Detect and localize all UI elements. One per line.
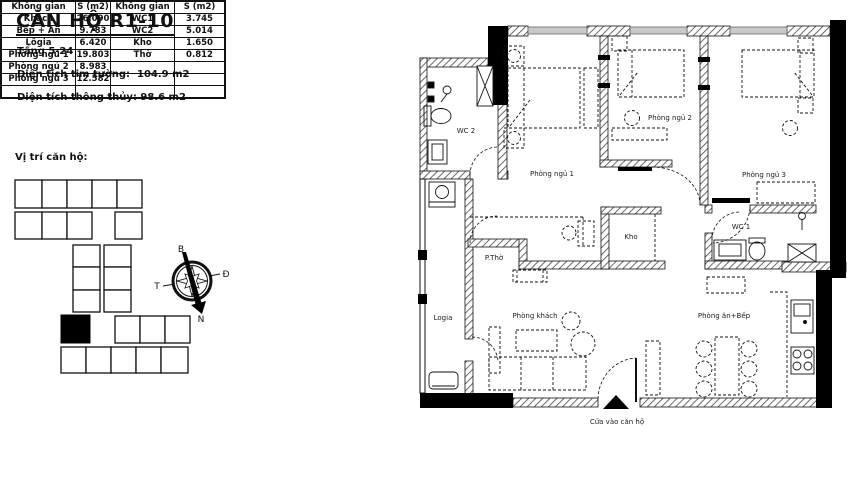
room-label-dining-kitchen: Phòng ăn+Bếp [698, 312, 751, 320]
entrance-label: Cửa vào căn hộ [590, 418, 644, 426]
chair-icon [696, 381, 712, 397]
wardrobe-icon [584, 68, 598, 128]
cell: 0.812 [175, 50, 226, 62]
cell: 5.014 [175, 26, 226, 38]
location-label: Vị trí căn hộ: [15, 152, 88, 163]
cell: 19.803 [76, 50, 111, 62]
compass-west-label: T [153, 282, 160, 292]
sink-icon [428, 140, 447, 164]
room-label-bedroom3: Phòng ngủ 3 [742, 171, 786, 179]
bed2-icon [618, 50, 684, 97]
floor-plan: Cửa vào căn hộ WC 2 Phòng ngủ 1 Phòng ng… [410, 0, 850, 460]
stove-icon [791, 347, 814, 374]
compass-icon: B Đ T N [153, 245, 229, 325]
compass-east-label: Đ [223, 270, 230, 280]
wc1-toilet-icon [749, 238, 765, 260]
wc1-basin-icon [714, 240, 746, 260]
gross-area-line: Diện tích tim tường: 104.9 m2 [17, 69, 189, 80]
gross-area-value: 104.9 m2 [137, 69, 190, 80]
compass-south-label: N [198, 315, 205, 325]
kitchen-sink-icon [791, 300, 813, 333]
counter-edge [770, 292, 787, 397]
cell: Thờ [111, 50, 175, 62]
furniture-dashed [470, 36, 815, 397]
cell: 1.650 [175, 38, 226, 50]
apartment-floorplan-page: CĂN HỘ R1-10 Tầng 5-24 Diện tích tim tườ… [0, 0, 850, 489]
entrance-arrow-icon [603, 395, 629, 409]
shower-icon [428, 82, 451, 102]
sofa-icon [489, 357, 586, 390]
altar-table-icon [513, 270, 547, 282]
room-label-living: Phòng khách [512, 312, 557, 320]
armchair-icon [562, 312, 580, 330]
wardrobe-icon [612, 128, 667, 140]
cell: 6.420 [76, 38, 111, 50]
cell: Kho [111, 38, 175, 50]
cabinet-icon [646, 341, 660, 395]
room-label-bedroom1: Phòng ngủ 1 [530, 170, 574, 178]
stool-icon [625, 111, 640, 126]
net-area-label: Diện tích thông thủy: [17, 92, 137, 103]
coffee-table-icon [516, 330, 557, 351]
site-plan-units [15, 180, 190, 373]
armchair-icon [571, 332, 595, 356]
desk-icon [578, 221, 594, 246]
room-label-bedroom2: Phòng ngủ 2 [648, 114, 692, 122]
compass-north-label: B [178, 245, 184, 255]
chair-icon [741, 341, 757, 357]
fan-icon [612, 36, 627, 51]
col-header-area2: S (m2) [175, 1, 226, 14]
wardrobe-icon [757, 182, 815, 203]
site-plan-map: B Đ T N [0, 170, 250, 385]
net-area-value: 98.6 m2 [140, 92, 186, 103]
fan-icon [508, 132, 521, 145]
room-label-storage: Kho [624, 233, 637, 241]
chair-icon [562, 226, 576, 240]
loggia-bench-icon [429, 372, 458, 389]
page-title: CĂN HỘ R1-10 [16, 10, 174, 36]
highlighted-unit [61, 315, 90, 343]
room-label-wc2: WC 2 [457, 127, 476, 135]
chair-icon [741, 381, 757, 397]
room-label-altar: P.Thờ [485, 254, 504, 262]
chair-icon [741, 361, 757, 377]
toilet-icon [424, 106, 451, 126]
washing-machine-icon [429, 182, 455, 207]
stool-icon [783, 121, 798, 136]
bed1-icon [508, 68, 580, 128]
chair-icon [696, 341, 712, 357]
fan-icon [508, 50, 521, 63]
sideboard-icon [707, 277, 745, 293]
gross-area-label: Diện tích tim tường: [17, 69, 130, 80]
net-area-line: Diện tích thông thủy: 98.6 m2 [17, 92, 186, 103]
room-label-loggia: Logia [434, 314, 453, 322]
bed3-icon [742, 50, 814, 97]
fan-icon [798, 98, 813, 113]
dining-table-icon [715, 337, 739, 395]
chair-icon [696, 361, 712, 377]
wc1-shower-icon [799, 213, 806, 231]
floor-range: Tầng 5-24 [17, 46, 73, 57]
cell: 3.745 [175, 14, 226, 26]
room-label-wc1: WC 1 [732, 223, 751, 231]
